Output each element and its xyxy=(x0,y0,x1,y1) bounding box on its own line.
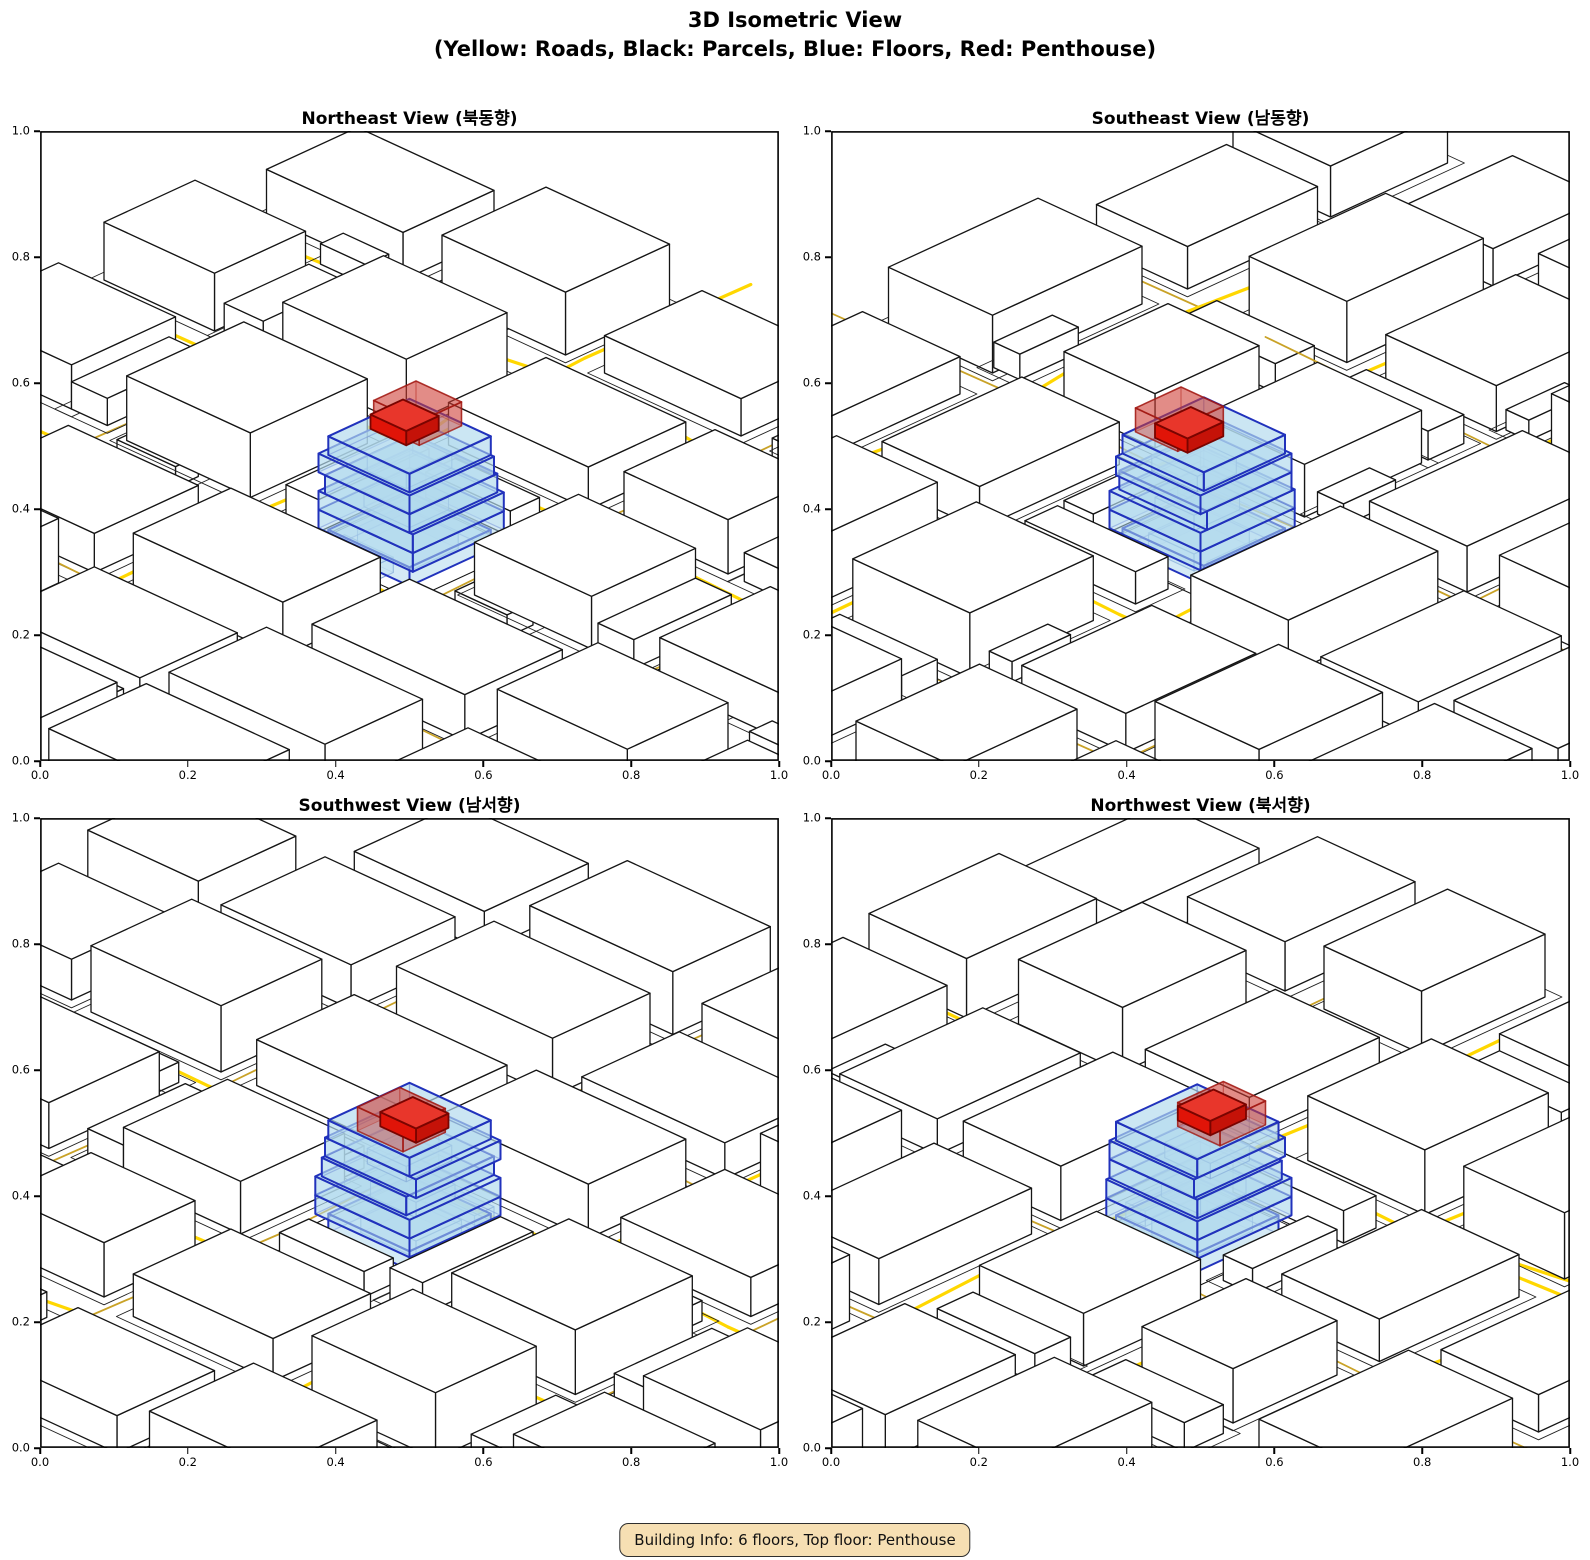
x-tick-mark xyxy=(39,761,41,767)
x-tick-mark xyxy=(630,1448,632,1454)
y-tick-label: 1.0 xyxy=(12,812,30,824)
x-tick-mark xyxy=(39,1448,41,1454)
y-tick-label: 0.2 xyxy=(12,629,30,641)
y-tick-label: 0.0 xyxy=(12,1442,30,1454)
y-tick-mark xyxy=(34,1447,40,1449)
y-tick-mark xyxy=(825,1069,831,1071)
y-tick-mark xyxy=(825,256,831,258)
y-tick-mark xyxy=(34,1069,40,1071)
figure-title: 3D Isometric View (Yellow: Roads, Black:… xyxy=(0,6,1590,64)
y-tick-label: 0.4 xyxy=(803,503,821,515)
y-tick-mark xyxy=(825,760,831,762)
y-tick-mark xyxy=(34,1321,40,1323)
x-tick-label: 1.0 xyxy=(770,1457,788,1469)
y-tick-mark xyxy=(34,634,40,636)
building-info-box: Building Info: 6 floors, Top floor: Pent… xyxy=(619,1523,970,1557)
x-tick-mark xyxy=(978,1448,980,1454)
y-tick-mark xyxy=(825,817,831,819)
x-tick-mark xyxy=(778,761,780,767)
subplot-title-northwest: Northwest View (북서향) xyxy=(831,791,1570,816)
x-tick-mark xyxy=(830,761,832,767)
scene-canvas xyxy=(40,131,779,761)
scene-canvas xyxy=(40,818,779,1448)
y-tick-mark xyxy=(825,943,831,945)
plot-area-southwest: 0.00.20.40.60.81.00.00.20.40.60.81.0 xyxy=(40,818,779,1448)
plot-area-northeast: 0.00.20.40.60.81.00.00.20.40.60.81.0 xyxy=(40,131,779,761)
plot-area-southeast: 0.00.20.40.60.81.00.00.20.40.60.81.0 xyxy=(831,131,1570,761)
y-tick-mark xyxy=(825,1195,831,1197)
y-tick-label: 0.6 xyxy=(803,377,821,389)
x-tick-mark xyxy=(335,761,337,767)
x-tick-label: 1.0 xyxy=(1561,770,1579,782)
x-tick-label: 0.4 xyxy=(1117,1457,1135,1469)
x-tick-label: 0.2 xyxy=(970,1457,988,1469)
subplot-northwest-view: Northwest View (북서향) 0.00.20.40.60.81.00… xyxy=(831,818,1570,1448)
x-tick-label: 0.0 xyxy=(822,1457,840,1469)
x-tick-mark xyxy=(978,761,980,767)
x-tick-mark xyxy=(778,1448,780,1454)
x-tick-mark xyxy=(483,761,485,767)
y-tick-mark xyxy=(34,256,40,258)
y-tick-mark xyxy=(34,508,40,510)
x-tick-mark xyxy=(1126,1448,1128,1454)
x-tick-label: 0.0 xyxy=(31,770,49,782)
y-tick-mark xyxy=(34,760,40,762)
figure-title-line1: 3D Isometric View xyxy=(0,6,1590,35)
y-tick-mark xyxy=(825,382,831,384)
subplot-title-southwest: Southwest View (남서향) xyxy=(40,791,779,816)
y-tick-mark xyxy=(825,1321,831,1323)
y-tick-mark xyxy=(34,1195,40,1197)
y-tick-label: 0.4 xyxy=(12,503,30,515)
subplot-southeast-view: Southeast View (남동향) 0.00.20.40.60.81.00… xyxy=(831,131,1570,761)
x-tick-mark xyxy=(1569,1448,1571,1454)
x-tick-mark xyxy=(1274,761,1276,767)
x-tick-label: 0.2 xyxy=(179,1457,197,1469)
x-tick-label: 0.8 xyxy=(622,1457,640,1469)
x-tick-label: 0.8 xyxy=(1413,770,1431,782)
y-tick-mark xyxy=(825,1447,831,1449)
plot-area-northwest: 0.00.20.40.60.81.00.00.20.40.60.81.0 xyxy=(831,818,1570,1448)
y-tick-label: 0.4 xyxy=(12,1190,30,1202)
x-tick-label: 0.4 xyxy=(326,1457,344,1469)
y-tick-label: 0.2 xyxy=(803,1316,821,1328)
x-tick-label: 1.0 xyxy=(770,770,788,782)
x-tick-mark xyxy=(1421,761,1423,767)
y-tick-label: 0.0 xyxy=(803,1442,821,1454)
y-tick-mark xyxy=(825,130,831,132)
x-tick-mark xyxy=(630,761,632,767)
scene-canvas xyxy=(831,131,1570,761)
x-tick-label: 0.6 xyxy=(474,1457,492,1469)
y-tick-mark xyxy=(825,508,831,510)
figure-3d-isometric-view: 3D Isometric View (Yellow: Roads, Black:… xyxy=(0,0,1590,1560)
x-tick-mark xyxy=(1126,761,1128,767)
x-tick-label: 0.6 xyxy=(1265,770,1283,782)
y-tick-label: 0.4 xyxy=(803,1190,821,1202)
x-tick-mark xyxy=(335,1448,337,1454)
y-tick-label: 0.0 xyxy=(12,755,30,767)
x-tick-label: 0.4 xyxy=(1117,770,1135,782)
x-tick-label: 0.2 xyxy=(970,770,988,782)
y-tick-label: 0.6 xyxy=(12,377,30,389)
x-tick-mark xyxy=(830,1448,832,1454)
y-tick-label: 0.8 xyxy=(803,251,821,263)
x-tick-label: 0.6 xyxy=(1265,1457,1283,1469)
x-tick-label: 0.0 xyxy=(822,770,840,782)
x-tick-label: 1.0 xyxy=(1561,1457,1579,1469)
x-tick-label: 0.6 xyxy=(474,770,492,782)
subplot-title-southeast: Southeast View (남동향) xyxy=(831,104,1570,129)
subplot-title-northeast: Northeast View (북동향) xyxy=(40,104,779,129)
figure-title-line2: (Yellow: Roads, Black: Parcels, Blue: Fl… xyxy=(0,35,1590,64)
x-tick-mark xyxy=(1569,761,1571,767)
y-tick-label: 0.8 xyxy=(803,938,821,950)
x-tick-label: 0.0 xyxy=(31,1457,49,1469)
y-tick-mark xyxy=(34,943,40,945)
x-tick-label: 0.2 xyxy=(179,770,197,782)
x-tick-mark xyxy=(1274,1448,1276,1454)
x-tick-mark xyxy=(187,761,189,767)
y-tick-label: 1.0 xyxy=(803,812,821,824)
y-tick-label: 0.2 xyxy=(803,629,821,641)
y-tick-label: 0.6 xyxy=(803,1064,821,1076)
y-tick-mark xyxy=(825,634,831,636)
y-tick-mark xyxy=(34,817,40,819)
y-tick-mark xyxy=(34,130,40,132)
subplot-southwest-view: Southwest View (남서향) 0.00.20.40.60.81.00… xyxy=(40,818,779,1448)
x-tick-label: 0.8 xyxy=(1413,1457,1431,1469)
subplot-northeast-view: Northeast View (북동향) 0.00.20.40.60.81.00… xyxy=(40,131,779,761)
y-tick-label: 0.0 xyxy=(803,755,821,767)
x-tick-label: 0.8 xyxy=(622,770,640,782)
x-tick-label: 0.4 xyxy=(326,770,344,782)
y-tick-label: 0.6 xyxy=(12,1064,30,1076)
y-tick-label: 0.2 xyxy=(12,1316,30,1328)
x-tick-mark xyxy=(1421,1448,1423,1454)
y-tick-label: 1.0 xyxy=(12,125,30,137)
y-tick-mark xyxy=(34,382,40,384)
y-tick-label: 0.8 xyxy=(12,938,30,950)
y-tick-label: 0.8 xyxy=(12,251,30,263)
scene-canvas xyxy=(831,818,1570,1448)
y-tick-label: 1.0 xyxy=(803,125,821,137)
x-tick-mark xyxy=(483,1448,485,1454)
x-tick-mark xyxy=(187,1448,189,1454)
